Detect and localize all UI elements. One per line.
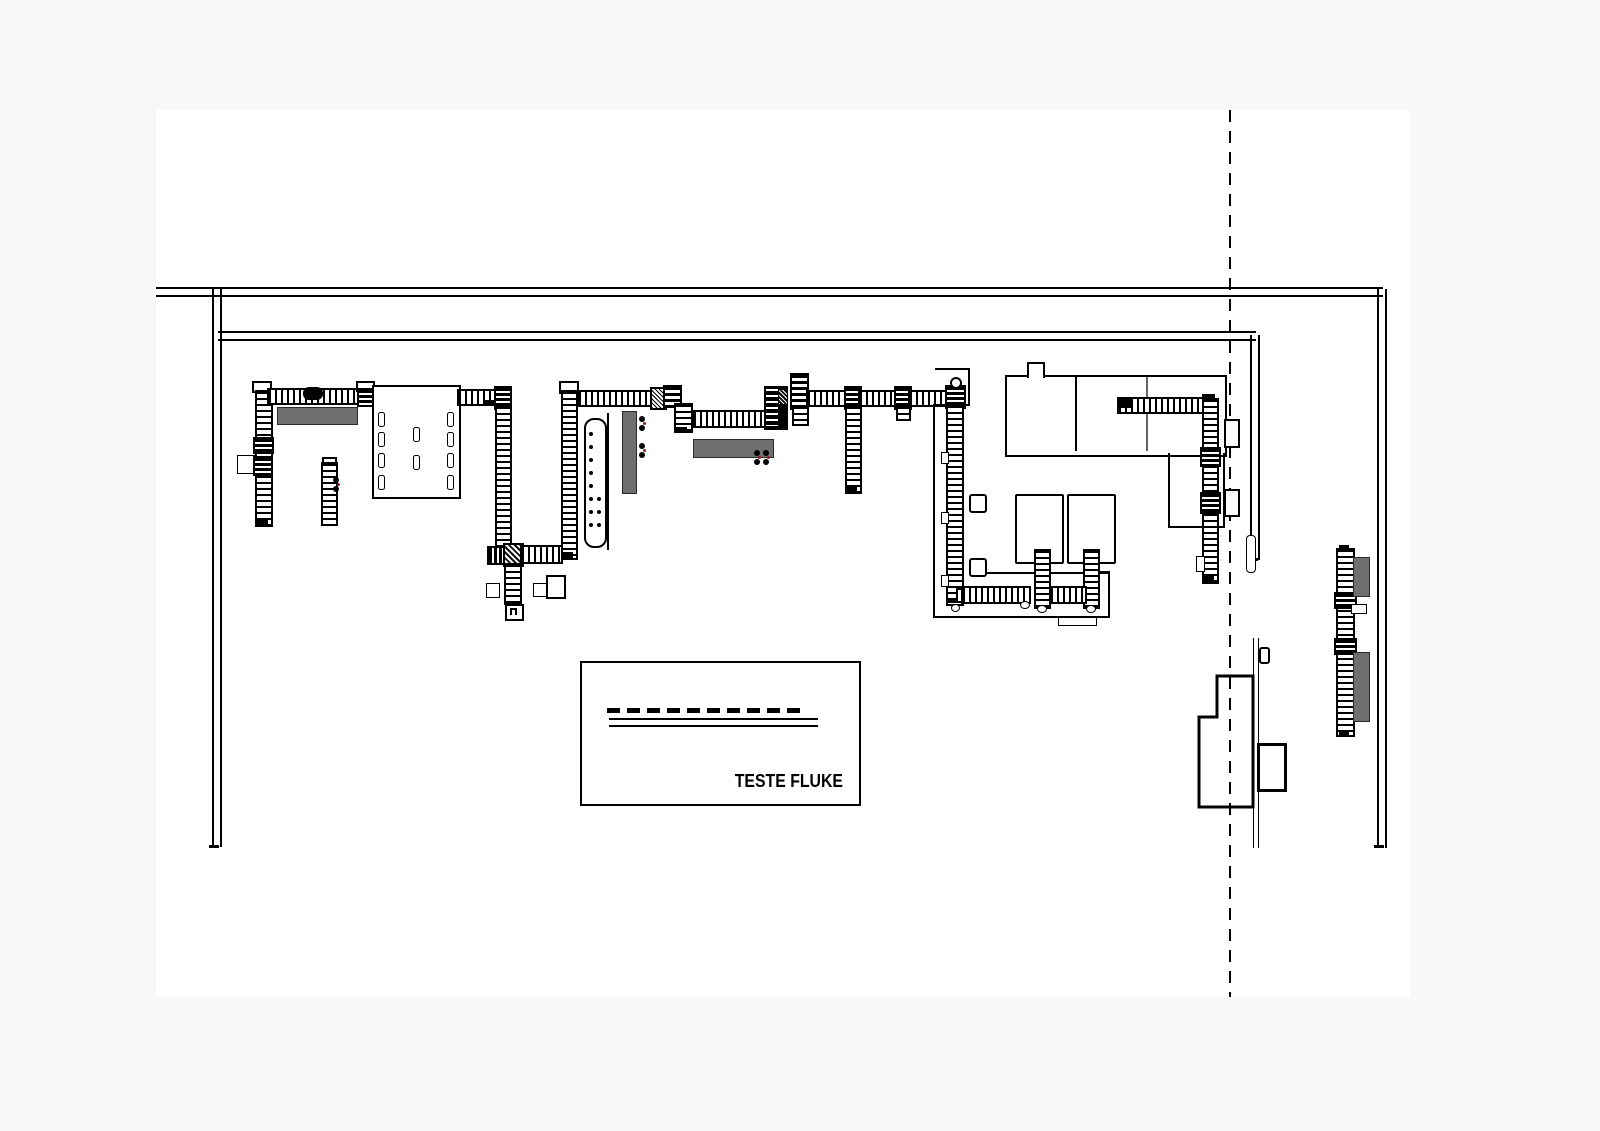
conveyor-ladder-stub: [792, 405, 809, 426]
conveyor-end-cap: [1339, 730, 1349, 735]
machine-slot: [447, 475, 454, 490]
side-tab-station: [1224, 489, 1240, 517]
equipment-gray-rack: [1353, 652, 1370, 722]
outer-wall-right: [1377, 289, 1387, 848]
small-marker: [1259, 647, 1270, 664]
machine-block-large: [1005, 375, 1227, 457]
inner-wall-top: [218, 331, 1256, 341]
equipment-gray-bench: [693, 439, 774, 458]
cell-outline: [968, 368, 970, 406]
process-unit-black: [764, 386, 788, 430]
conveyor-vertical-short: [321, 462, 338, 526]
pallet-stop-tab: [969, 494, 987, 513]
conveyor-end-cap: [676, 427, 687, 432]
wall-end-tick-left: [209, 845, 219, 848]
inner-wall-right: [1250, 335, 1260, 560]
conveyor-side-bump: [941, 575, 949, 587]
equipment-gray-bench: [277, 407, 358, 425]
machine-slot: [447, 453, 454, 468]
cell-outline: [1168, 453, 1170, 528]
machine-slot: [378, 432, 385, 447]
racetrack-buffer-loop: [584, 418, 607, 548]
conveyor-junction: [253, 456, 273, 476]
operator-marker-icon: [639, 416, 645, 432]
cell-outline: [935, 368, 969, 370]
operator-marker-icon: [639, 443, 645, 459]
equipment-gray-rack: [622, 411, 637, 494]
wall-end-tick-right: [1374, 845, 1384, 848]
conveyor-horizontal-infeed: [1117, 397, 1207, 414]
process-unit-stripes: [766, 389, 778, 426]
conveyor-end-cap: [1204, 576, 1214, 581]
conveyor-stub: [896, 405, 911, 421]
conveyor-horizontal-low: [692, 410, 767, 428]
conveyor-vertical-b: [504, 563, 522, 605]
conveyor-horizontal: [858, 390, 899, 407]
machine-slot: [378, 412, 385, 427]
operator-marker-icon: [763, 450, 769, 466]
conveyor-horizontal: [520, 545, 563, 564]
cell-outline: [1108, 572, 1110, 618]
buffer-pucks: [589, 432, 593, 436]
machine-slot: [378, 453, 385, 468]
conveyor-vertical-a: [495, 405, 512, 549]
dashed-centerline: [1229, 110, 1231, 997]
conveyor-foot: [1037, 605, 1047, 613]
process-unit-pattern: [779, 390, 787, 404]
sensor-circle: [950, 377, 962, 389]
conveyor-horizontal-2: [577, 390, 655, 407]
conveyor-drive-block: [1119, 399, 1131, 408]
conveyor-stub: [484, 400, 494, 405]
machine-slot: [447, 432, 454, 447]
socket-box: [505, 604, 524, 621]
operator-marker-icon: [754, 450, 760, 466]
outer-wall-top: [156, 287, 1383, 297]
conveyor-side-bump: [941, 452, 949, 464]
machine-divider: [1146, 377, 1148, 451]
drawing-canvas: TESTE FLUKE: [0, 0, 1600, 1131]
guide-line: [607, 413, 609, 550]
conveyor-foot: [951, 604, 960, 612]
conveyor-junction: [253, 437, 274, 454]
operator-marker-icon: [333, 477, 339, 493]
cell-outline: [933, 404, 935, 618]
machine-slot: [447, 412, 454, 427]
machine-top-notch: [1027, 362, 1045, 378]
conveyor-side-bump: [1196, 556, 1205, 572]
socket-notch: [512, 610, 515, 615]
conveyor-horizontal-bottom: [1049, 586, 1087, 604]
small-fixture: [486, 583, 500, 598]
machine-table: [372, 385, 461, 499]
test-area-label: TESTE FLUKE: [708, 771, 843, 792]
conveyor-vertical-drop: [845, 405, 862, 494]
side-tab-station: [1224, 419, 1240, 448]
small-fixture: [533, 583, 547, 597]
machine-slot: [413, 427, 420, 442]
outer-wall-left: [212, 289, 222, 847]
conveyor-carrier-blob: [303, 387, 323, 400]
pallet-stop-tab: [969, 558, 987, 577]
conveyor-horizontal: [806, 390, 849, 407]
conveyor-foot: [1020, 601, 1030, 609]
conveyor-end-cap: [257, 519, 268, 525]
test-area-double-line: [609, 718, 818, 727]
conveyor-foot: [1086, 605, 1096, 613]
small-fixture: [546, 575, 566, 599]
conveyor-side-bump: [941, 512, 949, 524]
conveyor-junction: [1200, 447, 1221, 467]
narrow-fixture: [1246, 535, 1256, 573]
building-annex: [1257, 743, 1287, 792]
machine-slot: [413, 455, 420, 470]
drawing-sheet: [156, 110, 1410, 997]
conveyor-end-cap: [562, 552, 573, 560]
conveyor-vertical-c: [561, 390, 578, 560]
cell-door-notch: [1058, 618, 1097, 626]
machine-divider: [1075, 377, 1077, 451]
test-area-dashed-row: [607, 708, 805, 713]
conveyor-side-tab: [1351, 604, 1367, 614]
conveyor-end-cap: [847, 486, 857, 491]
conveyor-junction: [1200, 492, 1221, 514]
machine-slot: [378, 475, 385, 490]
equipment-gray-rack: [1353, 557, 1370, 597]
